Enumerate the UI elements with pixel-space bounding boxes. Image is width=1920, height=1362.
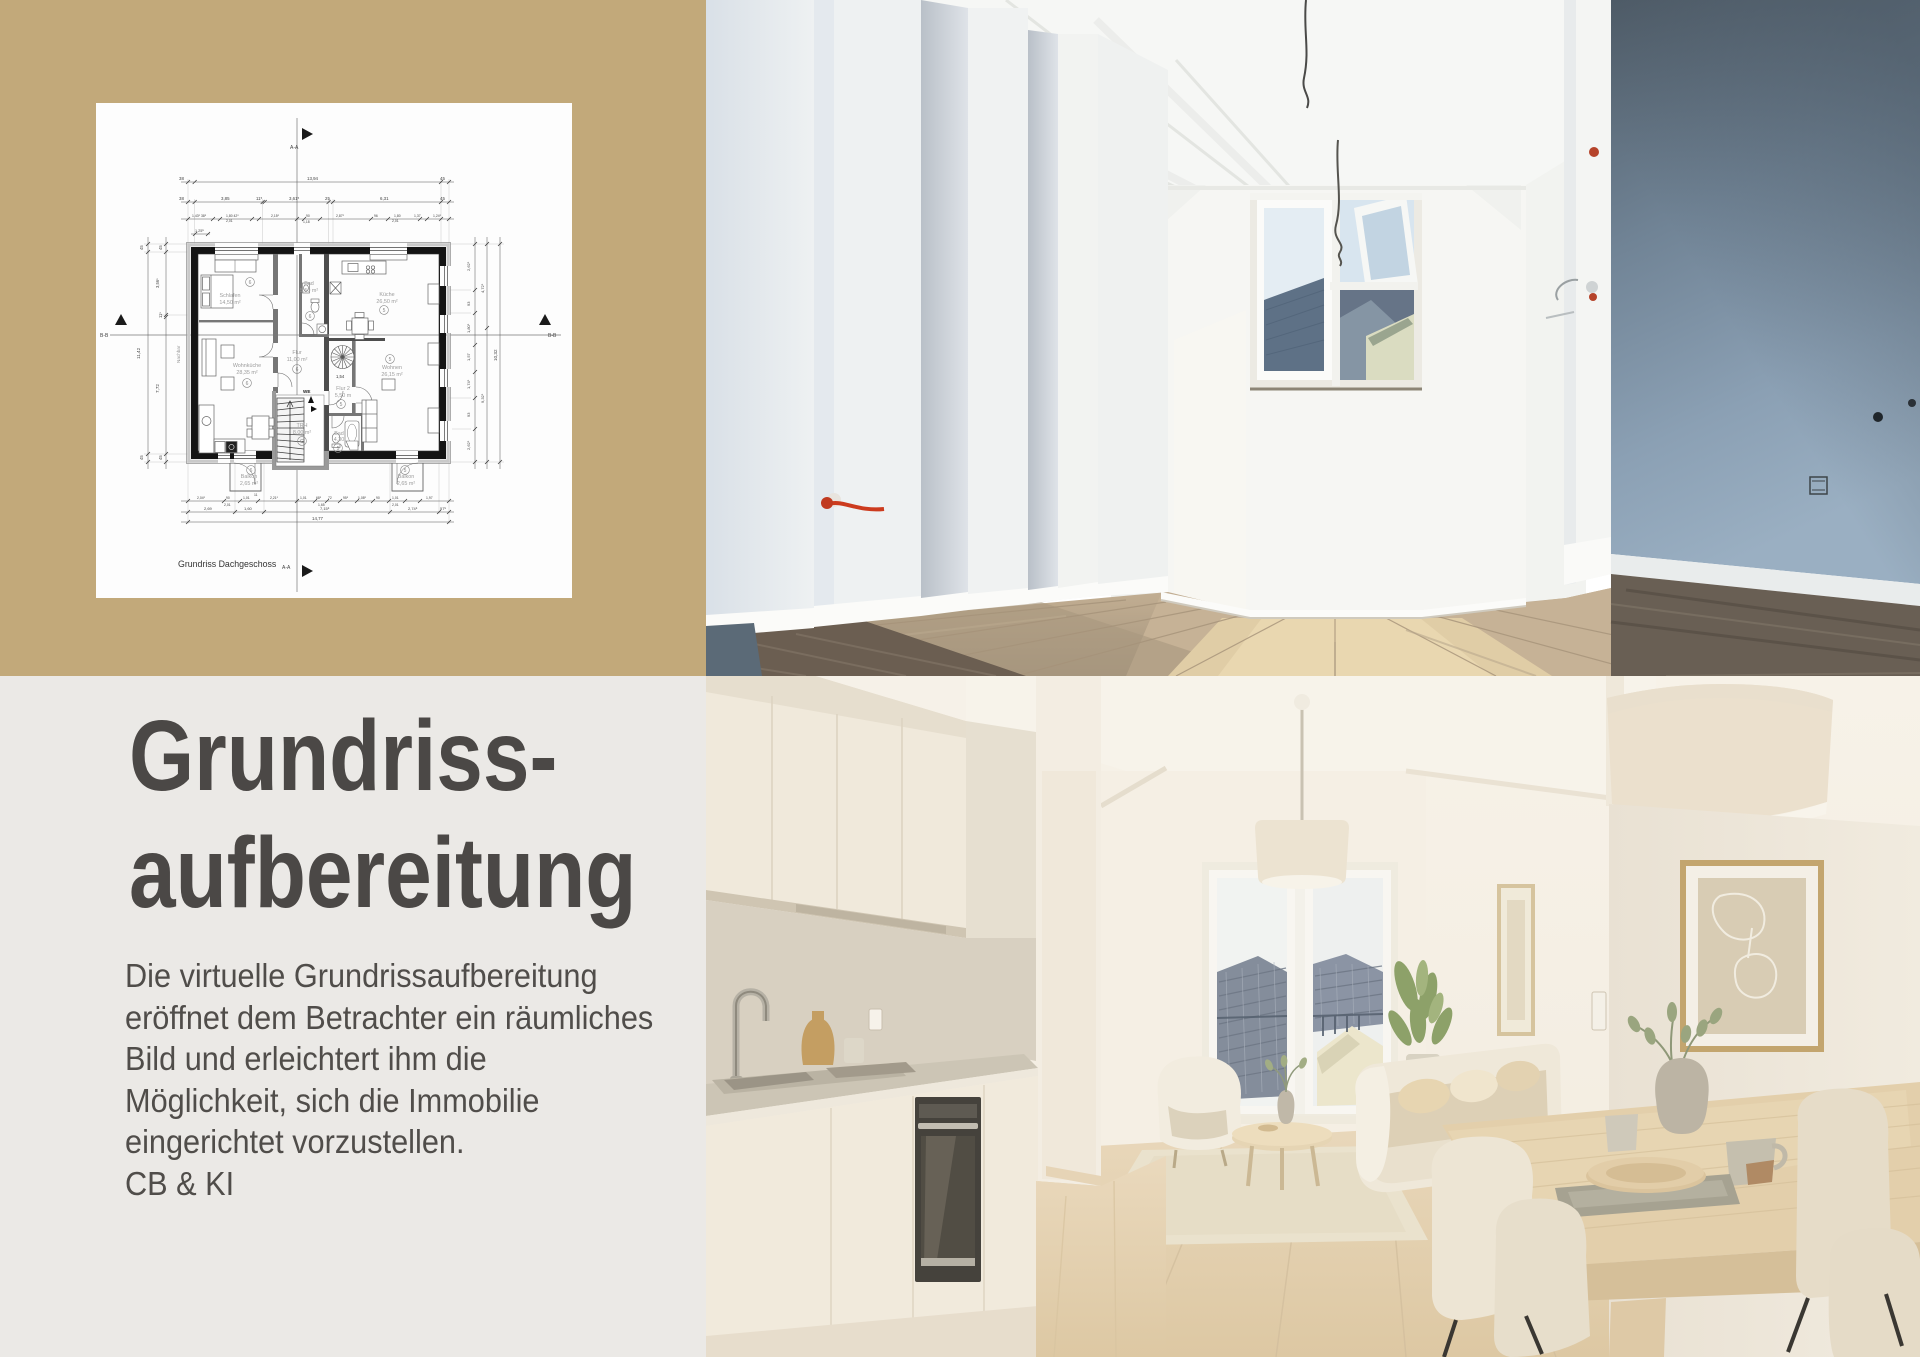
svg-text:2,04⁵: 2,04⁵	[197, 496, 206, 500]
svg-text:14,50 m²: 14,50 m²	[219, 300, 240, 306]
svg-text:1,37: 1,37	[414, 214, 421, 218]
svg-text:WE: WE	[303, 389, 310, 394]
svg-text:45: 45	[139, 245, 144, 250]
svg-text:93: 93	[466, 301, 471, 306]
svg-text:2,15⁵: 2,15⁵	[271, 214, 280, 218]
svg-text:5,50 m: 5,50 m	[335, 393, 352, 399]
svg-text:1,80⁵: 1,80⁵	[466, 323, 471, 333]
svg-text:1,54: 1,54	[336, 374, 345, 379]
svg-text:90: 90	[226, 496, 230, 500]
svg-text:72: 72	[328, 496, 332, 500]
svg-text:11: 11	[254, 493, 258, 497]
svg-text:96: 96	[374, 214, 378, 218]
svg-text:4,72⁵: 4,72⁵	[480, 283, 485, 293]
svg-text:2,01: 2,01	[392, 219, 399, 223]
svg-text:11,42: 11,42	[136, 347, 141, 359]
svg-text:13,94: 13,94	[307, 176, 319, 181]
svg-text:Schlafen: Schlafen	[220, 293, 241, 299]
svg-text:2,65 m²: 2,65 m²	[397, 481, 415, 487]
svg-text:8,00 m²: 8,00 m²	[293, 430, 311, 436]
svg-text:6: 6	[246, 381, 249, 387]
svg-text:1,80: 1,80	[394, 214, 401, 218]
svg-text:2,65 m²: 2,65 m²	[240, 481, 258, 487]
svg-text:38: 38	[179, 196, 184, 201]
svg-text:90: 90	[376, 496, 380, 500]
svg-text:11,00 m²: 11,00 m²	[287, 357, 308, 363]
svg-text:5: 5	[404, 468, 407, 474]
svg-text:2,01: 2,01	[392, 503, 399, 507]
svg-text:45: 45	[440, 196, 445, 201]
svg-text:11⁵: 11⁵	[256, 196, 263, 201]
svg-text:Küche: Küche	[379, 292, 394, 298]
svg-text:26,50 m²: 26,50 m²	[376, 299, 397, 305]
svg-text:2,87⁵: 2,87⁵	[336, 214, 345, 218]
svg-text:6: 6	[249, 280, 252, 286]
svg-text:Wohnen: Wohnen	[382, 365, 402, 371]
svg-text:5: 5	[340, 402, 343, 408]
svg-text:1,01: 1,01	[300, 496, 307, 500]
svg-text:95⁵: 95⁵	[343, 496, 349, 500]
svg-text:26,15 m²: 26,15 m²	[381, 372, 402, 378]
svg-text:45: 45	[158, 455, 163, 460]
svg-text:1,43⁵ 38⁵: 1,43⁵ 38⁵	[192, 214, 207, 218]
svg-text:7,15⁵: 7,15⁵	[320, 506, 330, 511]
svg-text:2,74⁵: 2,74⁵	[408, 506, 418, 511]
svg-text:93: 93	[466, 412, 471, 417]
svg-text:6,31: 6,31	[380, 196, 389, 201]
svg-text:3,61⁵: 3,61⁵	[289, 196, 300, 201]
svg-text:5,50 m²: 5,50 m²	[300, 288, 318, 294]
svg-text:TRH: TRH	[296, 423, 307, 429]
svg-text:4,30: 4,30	[334, 437, 345, 443]
svg-text:A-A: A-A	[290, 145, 299, 151]
svg-text:28,35 m²: 28,35 m²	[236, 370, 257, 376]
svg-text:Nachbar: Nachbar	[176, 345, 181, 363]
svg-text:57⁵: 57⁵	[440, 506, 446, 511]
svg-text:A-A: A-A	[282, 565, 291, 571]
svg-text:Balkon: Balkon	[241, 474, 257, 480]
svg-text:Bad: Bad	[304, 281, 314, 287]
svg-text:14,77: 14,77	[312, 516, 324, 521]
svg-text:25: 25	[325, 196, 330, 201]
svg-text:1,18: 1,18	[303, 220, 310, 224]
svg-text:B-B: B-B	[548, 333, 557, 339]
svg-text:1,80 42⁵: 1,80 42⁵	[226, 214, 239, 218]
svg-text:11⁵: 11⁵	[158, 312, 163, 318]
svg-text:5: 5	[383, 308, 386, 314]
svg-text:1,25⁵: 1,25⁵	[195, 229, 204, 233]
svg-text:7,72: 7,72	[155, 384, 160, 393]
svg-text:2,21⁵: 2,21⁵	[270, 496, 279, 500]
svg-text:1,97: 1,97	[426, 496, 433, 500]
svg-text:2,01: 2,01	[226, 219, 233, 223]
svg-text:45: 45	[440, 176, 445, 181]
svg-text:45: 45	[158, 245, 163, 250]
svg-text:Wohnküche: Wohnküche	[233, 363, 261, 369]
svg-text:Flur 2: Flur 2	[336, 386, 350, 392]
svg-text:68⁵: 68⁵	[316, 496, 322, 500]
svg-text:90: 90	[306, 214, 310, 218]
svg-text:6: 6	[309, 314, 312, 320]
svg-text:6: 6	[250, 468, 253, 474]
svg-text:38: 38	[179, 176, 184, 181]
svg-text:10,32: 10,32	[493, 349, 498, 361]
svg-text:1,01: 1,01	[243, 496, 250, 500]
svg-text:45: 45	[139, 455, 144, 460]
svg-text:Flur: Flur	[292, 350, 301, 356]
svg-text:Balkon: Balkon	[398, 474, 414, 480]
svg-text:2,62⁵: 2,62⁵	[466, 261, 471, 271]
svg-text:1,57: 1,57	[466, 352, 471, 361]
svg-text:6: 6	[296, 367, 299, 373]
svg-text:1,01: 1,01	[392, 496, 399, 500]
svg-text:3,56⁵: 3,56⁵	[155, 278, 160, 288]
svg-text:1,24⁵: 1,24⁵	[433, 214, 442, 218]
svg-text:1,60: 1,60	[244, 506, 253, 511]
svg-text:5: 5	[337, 446, 340, 452]
svg-text:3,85: 3,85	[221, 196, 230, 201]
svg-text:2,01: 2,01	[224, 503, 231, 507]
svg-text:2,69: 2,69	[204, 506, 213, 511]
svg-text:2,62⁵: 2,62⁵	[466, 440, 471, 450]
svg-text:1,08⁵: 1,08⁵	[358, 496, 367, 500]
svg-text:Grundriss Dachgeschoss: Grundriss Dachgeschoss	[178, 559, 277, 569]
svg-text:5: 5	[389, 357, 392, 363]
svg-text:9,32⁵: 9,32⁵	[480, 393, 485, 403]
svg-text:B-B: B-B	[100, 333, 109, 339]
svg-text:1,74⁵: 1,74⁵	[466, 379, 471, 389]
svg-text:G: G	[300, 439, 304, 445]
